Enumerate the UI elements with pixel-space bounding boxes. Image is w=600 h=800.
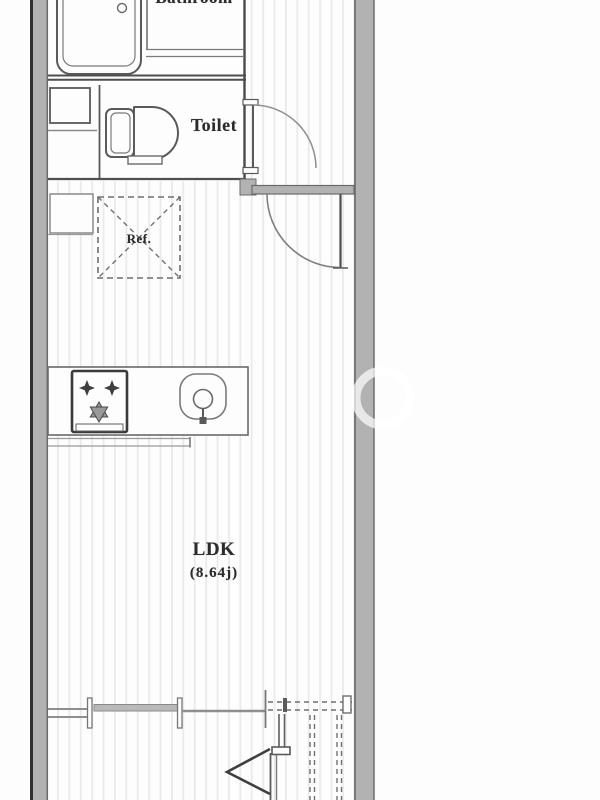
washbasin: [50, 88, 90, 123]
floor-plan-drawing: [0, 0, 600, 800]
shoe-cabinet: [48, 194, 93, 235]
window-jamb: [178, 698, 183, 728]
bathroom-label: Bathroom: [142, 0, 246, 8]
window-glazing: [94, 705, 178, 712]
ldk-size-label: (8.64j): [163, 565, 265, 582]
left-outer-wall: [30, 0, 48, 800]
bathtub: [57, 0, 141, 74]
refrigerator-label: Ref.: [98, 232, 180, 246]
kitchen-counter: [48, 367, 248, 448]
stove: [72, 371, 127, 432]
ldk-label: LDK: [163, 540, 265, 561]
sink: [180, 374, 226, 424]
toilet-label: Toilet: [183, 116, 245, 136]
floor-plan: Bathroom Toilet Ref. LDK (8.64j): [0, 0, 600, 800]
window-jamb: [88, 698, 93, 728]
